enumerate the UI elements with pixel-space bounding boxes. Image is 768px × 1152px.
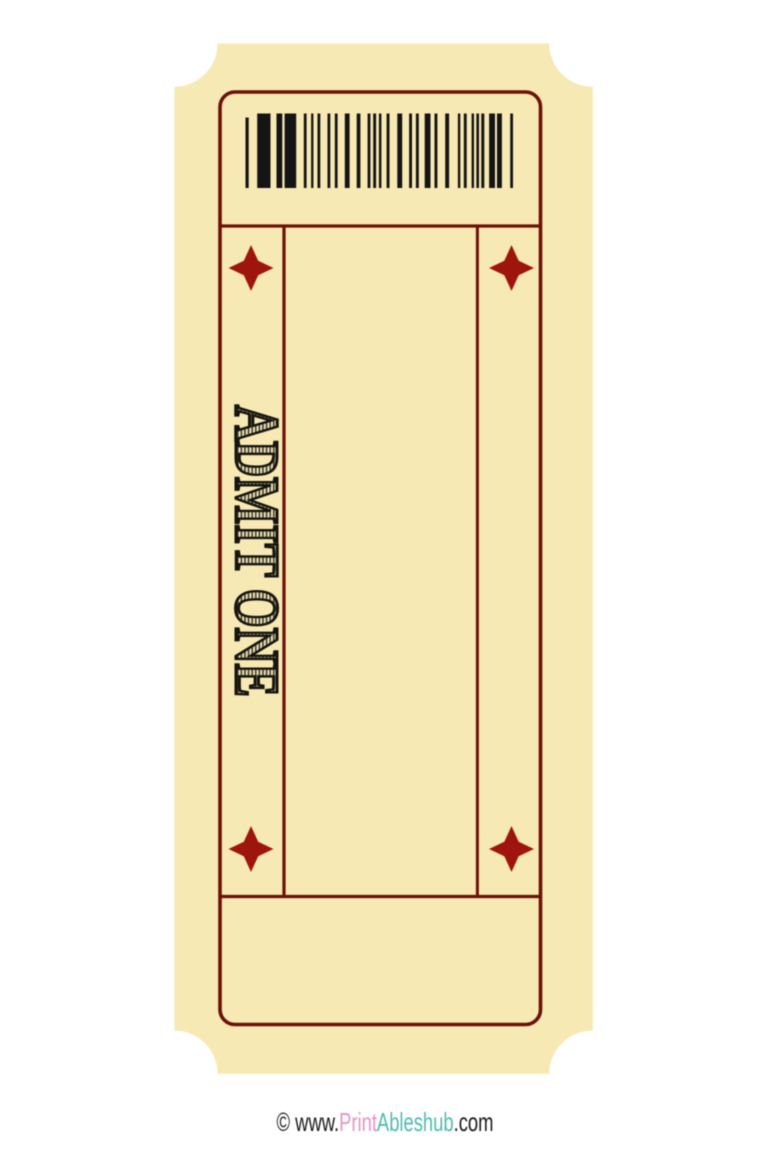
svg-text:© www.PrintAbleshub.com: © www.PrintAbleshub.com [277,1107,494,1137]
svg-text:ADMIT ONE: ADMIT ONE [222,405,290,697]
